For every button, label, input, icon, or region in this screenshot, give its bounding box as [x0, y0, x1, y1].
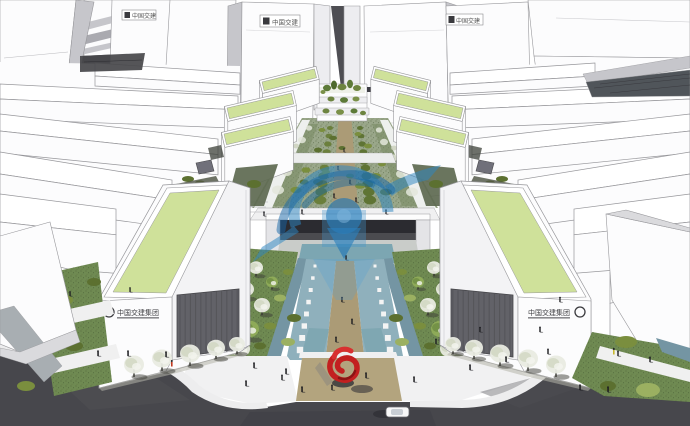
- svg-text:中国交建集团: 中国交建集团: [528, 308, 570, 317]
- svg-text:中国交建集团: 中国交建集团: [117, 308, 159, 317]
- svg-text:中国交建: 中国交建: [272, 18, 299, 27]
- svg-text:中国交建: 中国交建: [456, 17, 480, 25]
- svg-text:中国交建: 中国交建: [132, 12, 156, 20]
